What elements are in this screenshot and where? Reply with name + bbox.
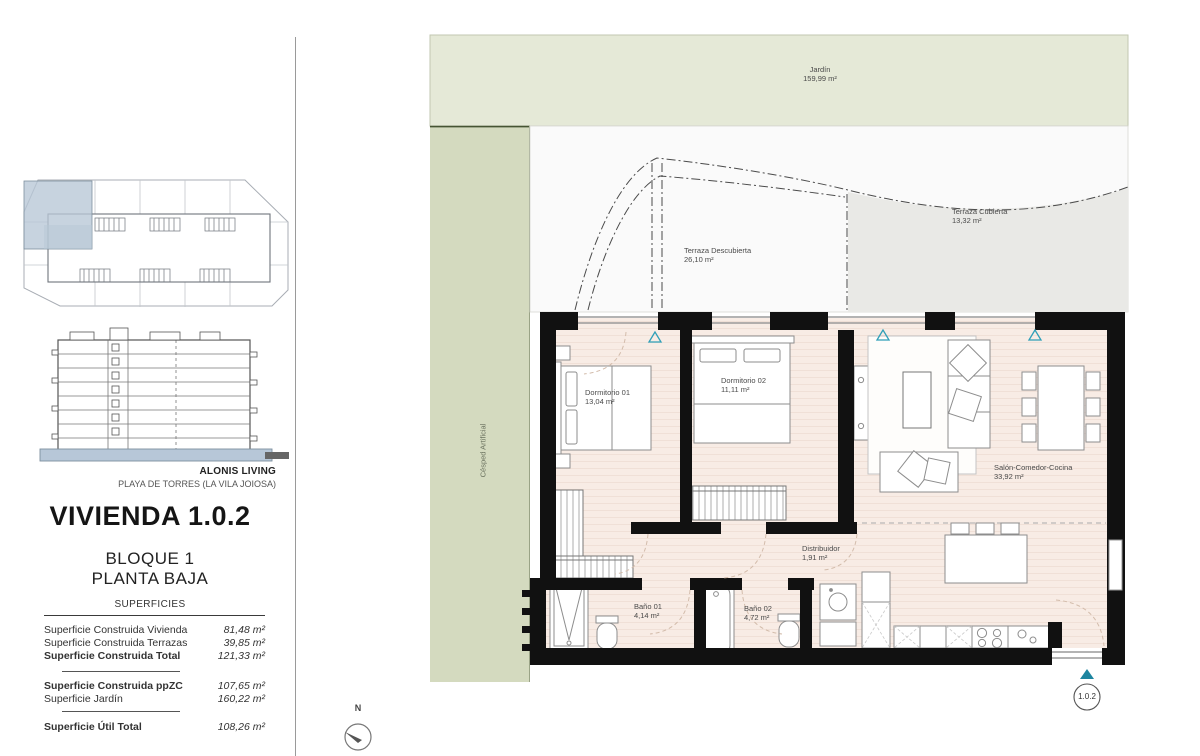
fridge bbox=[862, 572, 890, 602]
row-label: Superficie Construida Vivienda bbox=[44, 624, 187, 636]
chair bbox=[1086, 372, 1100, 390]
bed-headboard bbox=[690, 336, 794, 343]
brand-location: PLAYA DE TORRES (LA VILA JOIOSA) bbox=[20, 479, 276, 489]
dining-table bbox=[1038, 366, 1084, 450]
unit-block: BLOQUE 1 bbox=[10, 549, 290, 569]
compass-label: N bbox=[347, 703, 369, 713]
superficies-row: Superficie Construida Vivienda 81,48 m² bbox=[44, 624, 265, 636]
table-rule bbox=[62, 711, 180, 712]
compass-icon bbox=[345, 724, 371, 750]
coffee-table bbox=[903, 372, 931, 428]
chair bbox=[1086, 424, 1100, 442]
row-label: Superficie Útil Total bbox=[44, 721, 142, 733]
nightstand bbox=[554, 346, 570, 360]
unit-badge-label: 1.0.2 bbox=[1073, 692, 1101, 701]
superficies-row: Superficie Construida Total 121,33 m² bbox=[44, 650, 265, 662]
row-value: 39,85 m² bbox=[224, 637, 265, 649]
chair bbox=[1022, 398, 1036, 416]
terrace-door-slot bbox=[1109, 540, 1122, 590]
entry-marker bbox=[1074, 669, 1100, 710]
row-label: Superficie Construida Total bbox=[44, 650, 180, 662]
chair bbox=[1022, 424, 1036, 442]
terrace-area bbox=[530, 126, 1128, 312]
room-label-bano-01: Baño 01 4,14 m² bbox=[634, 603, 662, 621]
unit-title: VIVIENDA 1.0.2 bbox=[10, 501, 290, 532]
unit-floor: PLANTA BAJA bbox=[10, 569, 290, 589]
room-label-distribuidor: Distribuidor 1,91 m² bbox=[802, 545, 840, 563]
plan-sheet: ALONIS LIVING PLAYA DE TORRES (LA VILA J… bbox=[0, 0, 1200, 756]
building-elevation bbox=[40, 328, 289, 461]
site-key-plan bbox=[24, 180, 288, 307]
room-label-cesped: Césped Artificial bbox=[480, 347, 489, 477]
room-label-jardin: Jardín 159,99 m² bbox=[775, 66, 865, 84]
room-label-terraza-cubierta: Terraza Cubierta 13,32 m² bbox=[952, 208, 1007, 226]
north-needle bbox=[345, 732, 362, 743]
stool bbox=[976, 523, 994, 534]
washing-machine bbox=[820, 584, 856, 620]
row-label: Superficie Construida Terrazas bbox=[44, 637, 187, 649]
row-value: 108,26 m² bbox=[218, 721, 265, 733]
row-value: 107,65 m² bbox=[218, 680, 265, 692]
entry-opening bbox=[1052, 648, 1102, 665]
superficies-heading: SUPERFICIES bbox=[10, 599, 290, 610]
closet bbox=[551, 556, 633, 578]
table-rule bbox=[62, 671, 180, 672]
kitchen-island bbox=[945, 535, 1027, 583]
pillow bbox=[700, 349, 736, 362]
room-label-salon: Salón-Comedor-Cocina 33,92 m² bbox=[994, 464, 1072, 482]
entry-triangle-icon bbox=[1080, 669, 1094, 679]
table-rule bbox=[44, 615, 265, 616]
superficies-row: Superficie Construida Terrazas 39,85 m² bbox=[44, 637, 265, 649]
row-label: Superficie Jardín bbox=[44, 693, 123, 705]
cushion bbox=[924, 458, 950, 484]
superficies-row: Superficie Jardín 160,22 m² bbox=[44, 693, 265, 705]
ground-floor-highlight bbox=[40, 449, 272, 461]
room-label-dormitorio-02: Dormitorio 02 11,11 m² bbox=[721, 377, 766, 395]
row-label: Superficie Construida ppZC bbox=[44, 680, 183, 692]
sheet-divider bbox=[295, 37, 296, 756]
superficies-row: Superficie Construida ppZC 107,65 m² bbox=[44, 680, 265, 692]
chair bbox=[1086, 398, 1100, 416]
chair bbox=[1022, 372, 1036, 390]
toilet-tank bbox=[596, 616, 618, 623]
brand-name: ALONIS LIVING bbox=[20, 466, 276, 477]
stool bbox=[1001, 523, 1019, 534]
laundry-counter bbox=[820, 622, 856, 646]
pillow bbox=[566, 410, 577, 444]
toilet-tank bbox=[778, 614, 800, 621]
stool bbox=[951, 523, 969, 534]
room-label-dormitorio-01: Dormitorio 01 13,04 m² bbox=[585, 389, 630, 407]
room-label-bano-02: Baño 02 4,72 m² bbox=[744, 605, 772, 623]
row-value: 81,48 m² bbox=[224, 624, 265, 636]
row-value: 121,33 m² bbox=[218, 650, 265, 662]
toilet bbox=[597, 623, 617, 649]
pillow bbox=[566, 372, 577, 406]
superficies-row: Superficie Útil Total 108,26 m² bbox=[44, 721, 265, 733]
room-label-terraza-descubierta: Terraza Descubierta 26,10 m² bbox=[684, 247, 751, 265]
pillow bbox=[744, 349, 780, 362]
row-value: 160,22 m² bbox=[218, 693, 265, 705]
nightstand bbox=[554, 454, 570, 468]
